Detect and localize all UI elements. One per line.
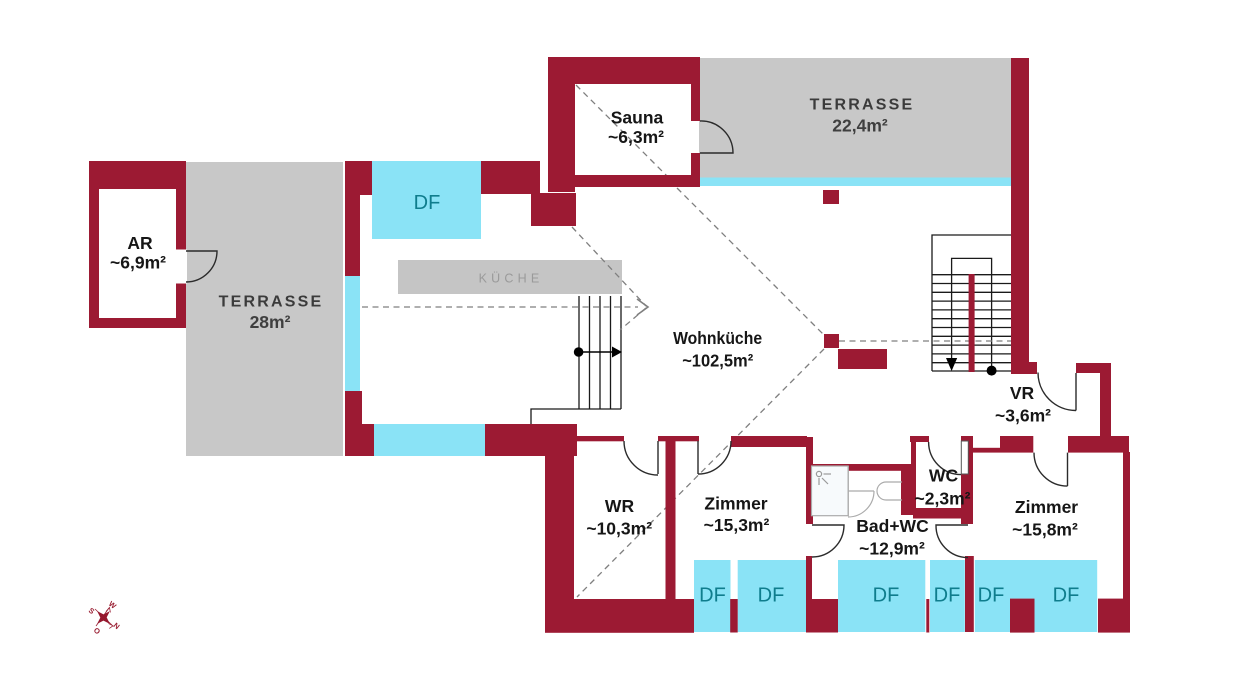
- svg-text:~3,6m²: ~3,6m²: [995, 406, 1051, 426]
- svg-text:~6,3m²: ~6,3m²: [608, 127, 664, 147]
- svg-text:WC: WC: [929, 466, 959, 486]
- svg-text:28m²: 28m²: [250, 312, 291, 332]
- svg-text:AR: AR: [127, 233, 153, 253]
- svg-text:~12,9m²: ~12,9m²: [859, 539, 925, 559]
- svg-text:Bad+WC: Bad+WC: [856, 516, 929, 536]
- svg-text:DF: DF: [1053, 585, 1080, 607]
- svg-text:~10,3m²: ~10,3m²: [586, 519, 652, 539]
- svg-text:Wohnküche: Wohnküche: [673, 328, 762, 348]
- svg-text:DF: DF: [758, 585, 785, 607]
- svg-text:Zimmer: Zimmer: [704, 494, 767, 514]
- svg-text:Zimmer: Zimmer: [1015, 497, 1078, 517]
- svg-text:Sauna: Sauna: [611, 108, 664, 128]
- svg-text:DF: DF: [873, 585, 900, 607]
- svg-text:DF: DF: [978, 585, 1005, 607]
- svg-text:KÜCHE: KÜCHE: [479, 272, 544, 286]
- svg-text:~15,8m²: ~15,8m²: [1012, 520, 1078, 540]
- svg-text:VR: VR: [1010, 383, 1035, 403]
- svg-text:DF: DF: [699, 585, 726, 607]
- svg-text:22,4m²: 22,4m²: [832, 116, 888, 136]
- svg-text:TERRASSE: TERRASSE: [219, 294, 324, 311]
- svg-text:~102,5m²: ~102,5m²: [682, 351, 753, 371]
- svg-text:TERRASSE: TERRASSE: [810, 97, 915, 114]
- svg-text:DF: DF: [414, 192, 441, 214]
- svg-text:WR: WR: [605, 496, 635, 516]
- svg-text:DF: DF: [934, 585, 961, 607]
- svg-text:~15,3m²: ~15,3m²: [704, 515, 770, 535]
- svg-text:~2,3m²: ~2,3m²: [915, 489, 971, 509]
- svg-text:~6,9m²: ~6,9m²: [110, 253, 166, 273]
